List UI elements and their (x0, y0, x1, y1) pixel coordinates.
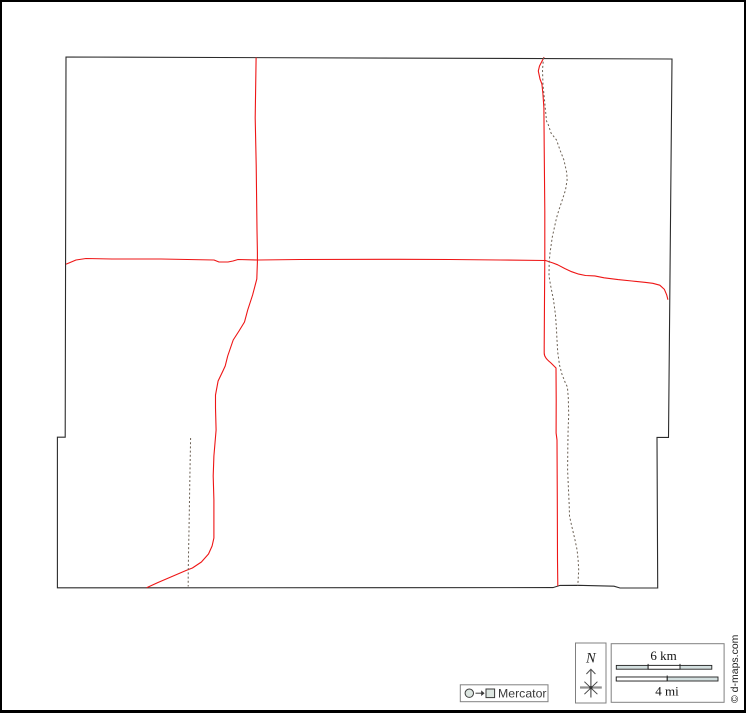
svg-text:Mercator: Mercator (498, 686, 547, 700)
svg-text:4 mi: 4 mi (655, 684, 679, 699)
svg-text:© d-maps.com: © d-maps.com (729, 634, 741, 703)
svg-text:6 km: 6 km (650, 648, 676, 663)
svg-text:N: N (585, 651, 597, 667)
